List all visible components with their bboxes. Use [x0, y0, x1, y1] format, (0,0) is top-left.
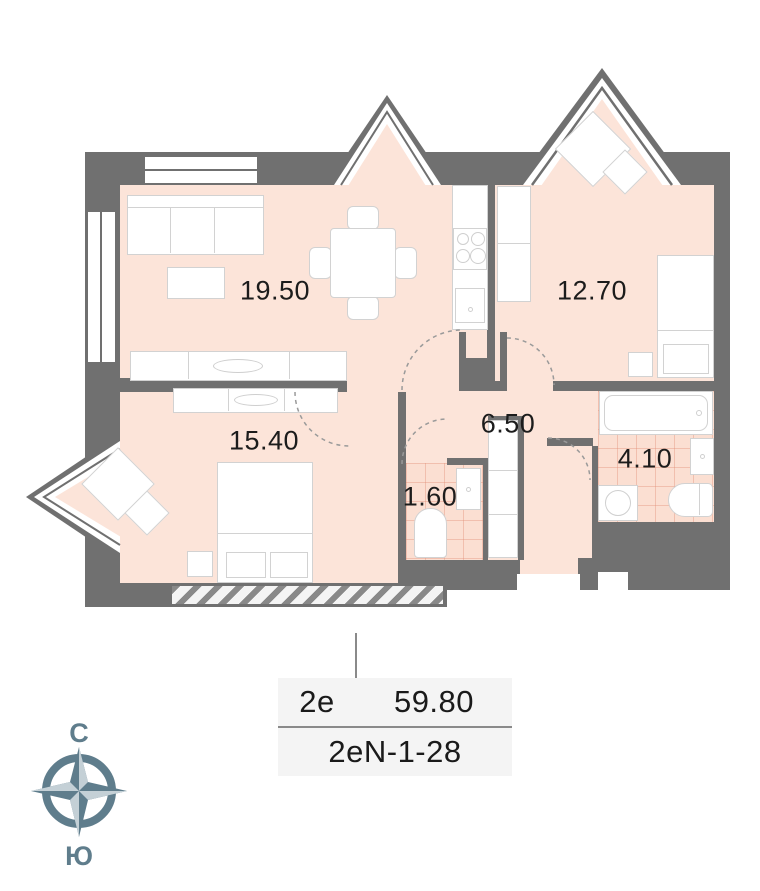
- sofa-back-line: [128, 207, 263, 208]
- stove-burner: [457, 233, 469, 245]
- stove-burner: [456, 249, 470, 263]
- bath-toilet: [668, 483, 713, 517]
- bathtub-inner: [604, 395, 708, 431]
- wc-sink-drain: [466, 487, 471, 492]
- bath-sink-drain: [700, 454, 705, 459]
- info-card-top-row: 2е 59.80: [278, 678, 512, 726]
- room-area-label-hallway: 6.50: [481, 409, 536, 440]
- wardrobe-divider: [498, 243, 530, 244]
- bed-left-pillow: [270, 552, 308, 578]
- bed-right-line: [658, 330, 713, 331]
- dresser-divider: [284, 389, 285, 411]
- window-top: [145, 171, 257, 183]
- balcony-hatch-strip: [172, 586, 443, 604]
- floor-plan-page: 19.50 12.70 15.40 6.50 1.60 4.10 2е 59.8…: [0, 0, 760, 891]
- wall-t-base: [459, 358, 495, 382]
- unit-code: 2еN-1-28: [278, 734, 512, 770]
- room-area-label-bedroom-left: 15.40: [229, 426, 299, 457]
- room-area-label-bathroom: 4.10: [618, 444, 673, 475]
- wall-bath-stub: [547, 438, 593, 446]
- dining-table: [330, 228, 396, 298]
- wc-toilet: [414, 508, 447, 558]
- threshold-notch: [598, 572, 628, 590]
- wardrobe-bedroom-right: [497, 186, 531, 302]
- bath-toilet-tank-line: [699, 484, 700, 515]
- kitchen-sink: [455, 288, 485, 323]
- dining-chair: [309, 247, 332, 279]
- nightstand-left: [187, 551, 213, 577]
- hall-wardrobe-divider: [489, 470, 517, 471]
- unit-total-area: 59.80: [356, 684, 512, 720]
- sofa-cushion-line: [214, 208, 215, 253]
- wall-kitchen-partition: [487, 185, 495, 360]
- window-left: [102, 212, 115, 362]
- washing-machine-door: [605, 490, 631, 516]
- info-card-bottom-row: 2еN-1-28: [278, 728, 512, 776]
- compass-north-label: С: [69, 718, 89, 748]
- wall-wc-top: [447, 458, 488, 465]
- stove-burner: [470, 248, 486, 264]
- dining-chair: [347, 206, 379, 230]
- dining-chair: [347, 296, 379, 320]
- bathtub-drain: [696, 410, 702, 416]
- tv-unit-divider: [289, 352, 290, 379]
- dresser-divider: [228, 389, 229, 411]
- wall-hall-segment: [459, 381, 507, 391]
- wall-right: [714, 152, 730, 590]
- room-area-label-bedroom-right: 12.70: [557, 276, 627, 307]
- stove-burner: [471, 232, 485, 246]
- tv-unit-divider: [188, 352, 189, 379]
- bed-right-pillow: [663, 344, 709, 374]
- compass-rose: С Ю: [20, 705, 140, 875]
- unit-type-label: 2е: [278, 684, 356, 720]
- coffee-table: [167, 267, 225, 299]
- sofa-cushion-line: [170, 208, 171, 253]
- dresser-oval: [234, 394, 278, 406]
- wall-bedroom-bathroom: [553, 381, 714, 391]
- kitchen-sink-drain: [468, 307, 473, 312]
- wall-doorstop-right: [500, 332, 507, 381]
- hall-wardrobe: [488, 420, 518, 558]
- hall-wardrobe-divider: [489, 514, 517, 515]
- bed-left-line: [218, 533, 312, 534]
- window-left: [88, 212, 100, 362]
- room-area-label-living: 19.50: [240, 276, 310, 307]
- tv-oval: [213, 359, 263, 373]
- dining-chair: [394, 247, 417, 279]
- compass-south-label: Ю: [65, 841, 93, 871]
- bed-left-pillow: [226, 552, 266, 578]
- sofa: [127, 195, 264, 255]
- room-area-label-wc: 1.60: [403, 482, 458, 513]
- entrance-outside: [517, 574, 580, 610]
- wall-doorstop-left: [459, 332, 466, 358]
- wall-under-bathroom: [592, 522, 714, 558]
- window-top: [145, 157, 257, 169]
- nightstand-right: [628, 352, 653, 377]
